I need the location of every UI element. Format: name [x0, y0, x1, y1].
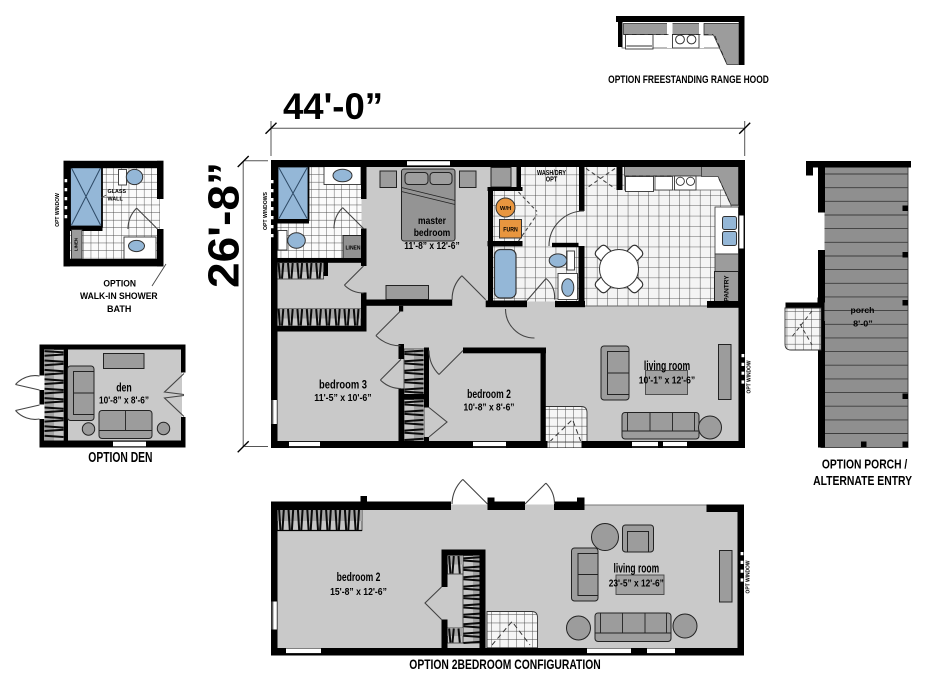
svg-text:bedroom 2: bedroom 2	[467, 387, 511, 401]
svg-text:10'-1” x 12'-6”: 10'-1” x 12'-6”	[639, 376, 695, 387]
svg-text:LINEN: LINEN	[346, 246, 361, 252]
svg-text:BATH: BATH	[107, 304, 132, 315]
svg-text:bedroom 2: bedroom 2	[337, 570, 381, 584]
svg-text:OPTION: OPTION	[103, 278, 136, 289]
svg-text:10'-8” x 8'-6”: 10'-8” x 8'-6”	[464, 402, 515, 413]
svg-text:OPT WINDOW: OPT WINDOW	[746, 560, 752, 593]
svg-text:FURN: FURN	[503, 227, 518, 234]
svg-text:W/H: W/H	[500, 206, 511, 212]
svg-text:PANTRY: PANTRY	[724, 275, 731, 302]
svg-text:23'-5” x 12'-6”: 23'-5” x 12'-6”	[609, 578, 664, 589]
svg-text:11'-5” x 10'-6”: 11'-5” x 10'-6”	[314, 393, 371, 404]
svg-text:bedroom 3: bedroom 3	[319, 378, 367, 392]
svg-text:26'-8”: 26'-8”	[200, 162, 249, 288]
svg-text:ALTERNATE ENTRY: ALTERNATE ENTRY	[813, 473, 912, 488]
svg-text:OPTION FREESTANDING RANGE HOOD: OPTION FREESTANDING RANGE HOOD	[608, 74, 769, 86]
svg-text:OPT WINDOW: OPT WINDOW	[747, 360, 753, 393]
svg-text:OPT: OPT	[546, 177, 558, 184]
svg-text:WALL: WALL	[108, 197, 124, 203]
svg-text:OPTION DEN: OPTION DEN	[88, 450, 152, 466]
svg-text:11'-8” x 12'-6”: 11'-8” x 12'-6”	[404, 241, 459, 252]
svg-text:10'-8” x 8'-6”: 10'-8” x 8'-6”	[99, 396, 149, 407]
svg-text:OPT WINDOW: OPT WINDOW	[55, 193, 61, 227]
svg-text:LINEN: LINEN	[74, 238, 79, 251]
svg-text:15'-8” x 12'-6”: 15'-8” x 12'-6”	[330, 587, 387, 598]
svg-text:bedroom: bedroom	[414, 227, 451, 239]
svg-text:OPTION PORCH /: OPTION PORCH /	[822, 456, 908, 471]
svg-text:8'-0”: 8'-0”	[853, 319, 873, 329]
svg-text:WALK-IN SHOWER: WALK-IN SHOWER	[80, 291, 158, 302]
svg-text:den: den	[116, 381, 132, 395]
svg-text:OPT WINDOWS: OPT WINDOWS	[263, 191, 269, 230]
svg-text:44'-0”: 44'-0”	[283, 86, 383, 127]
svg-text:living room: living room	[614, 561, 660, 576]
svg-text:GLASS: GLASS	[108, 189, 127, 195]
svg-text:master: master	[418, 215, 446, 227]
svg-text:OPTION 2BEDROOM CONFIGURATION: OPTION 2BEDROOM CONFIGURATION	[409, 657, 600, 672]
svg-text:living room: living room	[644, 359, 690, 373]
svg-text:porch: porch	[851, 305, 875, 315]
